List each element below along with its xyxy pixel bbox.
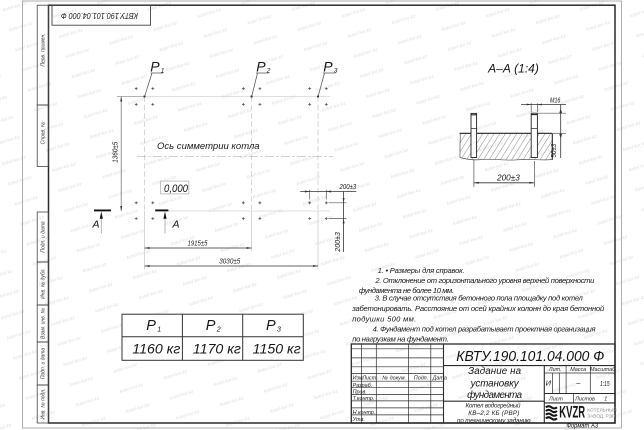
svg-text:КОТЕЛЬНЫЙ: КОТЕЛЬНЫЙ [587,406,616,413]
svg-text:Н.контр.: Н.контр. [353,410,376,416]
svg-text:КВТУ.190.101.04.000 Ф: КВТУ.190.101.04.000 Ф [61,11,138,20]
svg-text:Перв. примен.: Перв. примен. [40,33,46,66]
svg-text:фундамента: фундамента [467,390,523,401]
svg-text:KVZR: KVZR [559,404,585,422]
svg-text:3030±5: 3030±5 [219,259,240,266]
svg-text:0,000: 0,000 [164,183,189,195]
svg-text:Утв.: Утв. [352,417,365,423]
svg-text:1360±5: 1360±5 [112,142,119,163]
svg-text:Т.контр.: Т.контр. [353,396,375,402]
svg-text:И: И [546,378,552,387]
svg-text:Масса: Масса [570,367,586,373]
svg-text:Пров.: Пров. [353,390,367,396]
svg-text:Взам. инв. №: Взам. инв. № [40,307,46,339]
svg-text:КВ–2,2 КБ (РВР): КВ–2,2 КБ (РВР) [468,410,519,417]
svg-text:1915±5: 1915±5 [188,241,208,248]
svg-text:P: P [150,59,160,75]
svg-text:3: 3 [277,327,281,334]
svg-text:Задание на: Задание на [468,366,522,377]
svg-text:Масштаб: Масштаб [590,367,616,373]
svg-text:№ докум.: № докум. [382,375,406,381]
svg-text:Подп. и дата: Подп. и дата [40,221,46,253]
svg-text:1: 1 [604,396,607,402]
svg-text:200±3: 200±3 [496,173,520,183]
svg-text:А–А (1:4): А–А (1:4) [487,62,539,76]
svg-text:Подп. и дата: Подп. и дата [40,348,46,380]
svg-text:2. Отклонение от горизонтально: 2. Отклонение от горизонтального уровня … [374,276,595,285]
svg-text:по техническому заданию: по техническому заданию [457,418,531,425]
svg-text:1:15: 1:15 [600,381,610,388]
svg-text:Инв. № дубл.: Инв. № дубл. [40,268,46,299]
svg-text:P: P [323,59,333,75]
svg-text:Инв. № подл.: Инв. № подл. [40,388,46,419]
svg-text:1: 1 [161,68,165,75]
svg-text:–: – [575,378,581,387]
svg-text:1160 кг: 1160 кг [132,341,180,357]
svg-text:Лист: Лист [548,396,563,402]
svg-text:Лит.: Лит. [548,367,562,373]
svg-text:2: 2 [266,68,271,75]
svg-text:P: P [206,318,216,334]
svg-text:P: P [256,59,266,75]
svg-text:Справ. №: Справ. № [40,121,46,144]
svg-text:А: А [91,219,99,231]
svg-text:Лист: Лист [361,375,376,381]
svg-text:Ось симметрии котла: Ось симметрии котла [157,141,260,151]
svg-text:установку: установку [470,379,520,390]
svg-text:4. Фундамент под котел разраба: 4. Фундамент под котел разрабатывает про… [373,325,596,334]
svg-text:М16: М16 [550,98,560,105]
svg-text:3: 3 [334,68,338,75]
svg-text:Котел водогрейный: Котел водогрейный [466,403,522,410]
svg-text:ЗАВОД, РЭП: ЗАВОД, РЭП [587,413,615,418]
svg-text:P: P [266,318,276,334]
svg-text:Подп.: Подп. [414,375,428,381]
svg-text:Формат А3: Формат А3 [566,422,598,429]
svg-text:200±3: 200±3 [339,184,357,191]
svg-text:Листов: Листов [574,396,595,402]
svg-text:200±3: 200±3 [335,232,342,253]
svg-text:Дата: Дата [432,375,447,381]
svg-text:1150 кг: 1150 кг [253,341,301,357]
svg-text:2: 2 [216,327,221,334]
svg-text:Разраб.: Разраб. [353,383,373,389]
svg-text:забетонировать. Расстояние от: забетонировать. Расстояние от осей крайн… [351,304,605,313]
svg-text:P: P [146,318,156,334]
svg-text:А: А [171,219,179,231]
svg-text:1170 кг: 1170 кг [193,341,241,357]
svg-text:подушки 500 мм.: подушки 500 мм. [352,315,416,324]
svg-text:1. • Размеры для справок.: 1. • Размеры для справок. [378,266,465,275]
svg-text:50±3: 50±3 [551,144,558,158]
svg-text:1: 1 [157,327,161,334]
svg-text:3. В случае отсутствия бетонно: 3. В случае отсутствия бетонного пола пл… [375,294,584,303]
svg-text:КВТУ.190.101.04.000 Ф: КВТУ.190.101.04.000 Ф [456,349,604,365]
svg-text:по нагрузкам на фундамент.: по нагрузкам на фундамент. [352,335,449,344]
